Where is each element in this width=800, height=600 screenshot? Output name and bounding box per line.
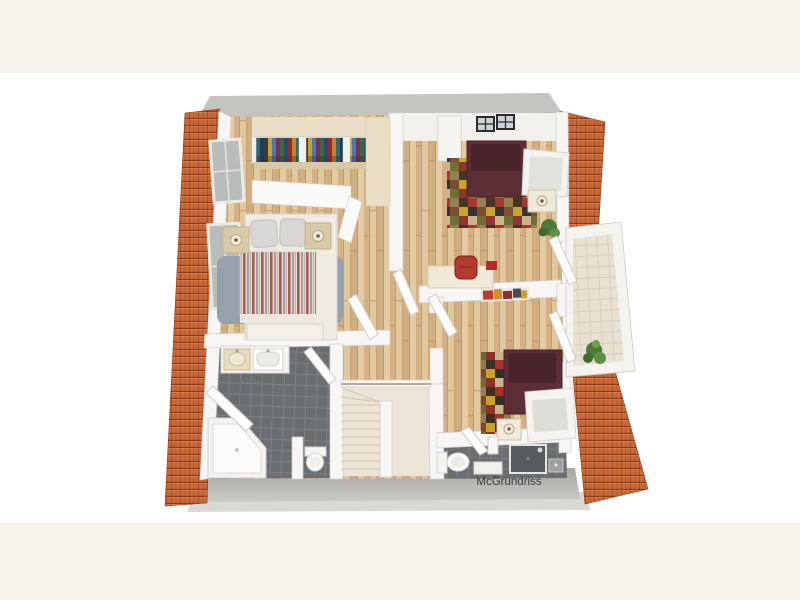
small-sink <box>549 459 563 472</box>
bathroom-right-wall <box>330 344 343 479</box>
toilet <box>437 452 469 473</box>
desk-books <box>486 261 497 270</box>
bed-pillow <box>250 219 277 247</box>
sink-right <box>253 349 283 370</box>
bed2-mattress <box>532 398 568 432</box>
sink-left <box>224 349 250 370</box>
ensuite-door-jamb <box>488 437 498 454</box>
chimney-block <box>438 116 461 161</box>
bed-mattress <box>528 156 563 191</box>
bed-maroon-pillow <box>471 144 521 171</box>
skylight-window <box>477 117 494 131</box>
toilet-privacy-stub <box>292 437 303 479</box>
nightstand <box>223 227 249 253</box>
watermark-text: McGrundriss <box>476 476 541 488</box>
bed-pillow <box>280 219 307 247</box>
nightstand <box>528 190 556 212</box>
shower-2 <box>510 445 546 473</box>
bath-mat <box>474 462 502 474</box>
closet-side-panel <box>366 118 390 206</box>
nightstand <box>497 419 521 440</box>
shower-drain <box>235 448 239 452</box>
bed2-maroon-pillow <box>508 353 556 383</box>
floorplan-render: McGrundriss <box>0 0 800 600</box>
hall-left-wall <box>389 113 403 271</box>
wall-artwork <box>481 287 529 302</box>
bed-striped-duvet <box>240 252 316 318</box>
bed-duvet-fold <box>240 314 316 323</box>
bed-foot-bench <box>247 324 323 340</box>
skylight-window <box>497 115 514 129</box>
nightstand <box>305 223 331 249</box>
bedroom2-left-wall <box>430 348 443 384</box>
left-window-upper <box>210 139 244 203</box>
stair-spine-wall <box>380 401 392 477</box>
